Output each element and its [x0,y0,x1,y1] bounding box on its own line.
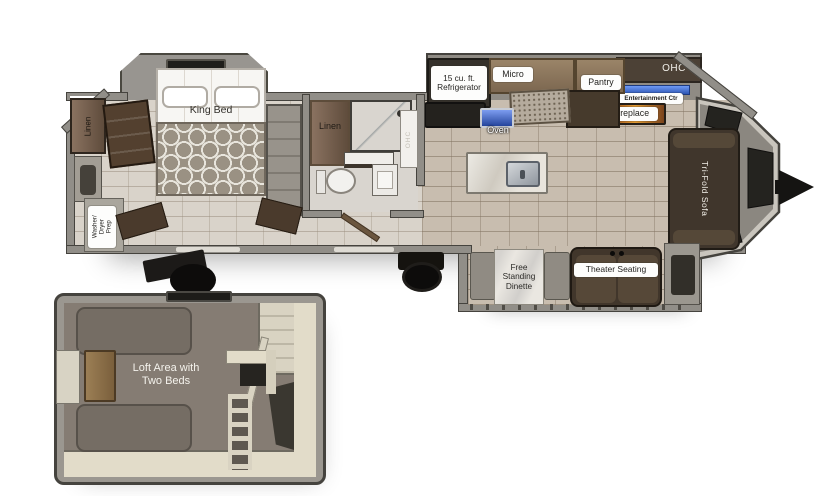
theater-seating [570,247,662,307]
rv-floorplan: Tri-Fold Sofa OHC Entertainment Ctr Fire… [0,0,832,496]
threshold-mid [334,247,394,252]
cupholder-icon [610,251,615,256]
rear-window-right [748,148,773,208]
bath-ohc-label: OHC [406,130,413,147]
end-table-top [671,255,695,295]
bath-linen-label: Linen [312,118,348,134]
kitchen-lower-cabinets [566,90,620,128]
bath-left-wall [302,94,310,218]
loft-ladder [228,394,252,470]
cupholder-icon-2 [619,251,624,256]
front-linen-cabinet: Linen [70,98,106,154]
threshold-front [176,247,240,252]
washer-dryer-label: Washer/ Dryer Prep [88,206,116,248]
hitch-icon [779,170,814,205]
kitchen-island [466,152,548,194]
bath-bottom-wall-left [302,210,342,218]
entry-step-mid-base [402,262,442,292]
loft-wall-niche [56,350,80,404]
toilet-tank [316,170,326,194]
loft-bed-top [76,307,192,355]
wardrobe-door [80,165,96,195]
tri-fold-sofa: Tri-Fold Sofa [668,128,740,250]
pantry-label: Pantry [581,75,621,90]
sofa-label: Tri-Fold Sofa [670,130,738,248]
loft-walkway-bottom [64,450,314,477]
refrigerator-label: 15 cu. ft. Refrigerator [431,66,487,100]
bedroom-dresser [102,99,155,168]
bath-ohc-cabinet: OHC [400,110,418,168]
faucet-icon [520,170,525,179]
front-linen-label: Linen [83,116,92,136]
kitchen-counter-granite [509,88,571,125]
toilet [326,168,356,194]
front-wardrobe [74,156,102,202]
dinette-bench-right [544,252,570,300]
loft-bed-bottom [76,404,192,452]
dinette-bench-left [470,252,496,300]
loft-shelf-side [266,350,276,394]
slide-end-table [664,243,700,305]
loft-label: Loft Area with Two Beds [104,360,228,390]
oven-label: Oven [476,124,520,136]
king-bed-label: King Bed [156,103,266,118]
king-bed-comforter [156,122,266,196]
dinette-table: Free Standing Dinette [494,249,544,305]
loft-walkway-right [294,303,316,477]
dinette-label: Free Standing Dinette [503,263,536,292]
bath-sink-unit [372,164,398,196]
bath-bottom-wall-right [390,210,424,218]
loft-window [166,291,232,302]
loft-shelf-opening [240,364,268,386]
micro-label: Micro [493,67,533,82]
bath-sink [377,171,393,189]
theater-label: Theater Seating [574,263,658,277]
